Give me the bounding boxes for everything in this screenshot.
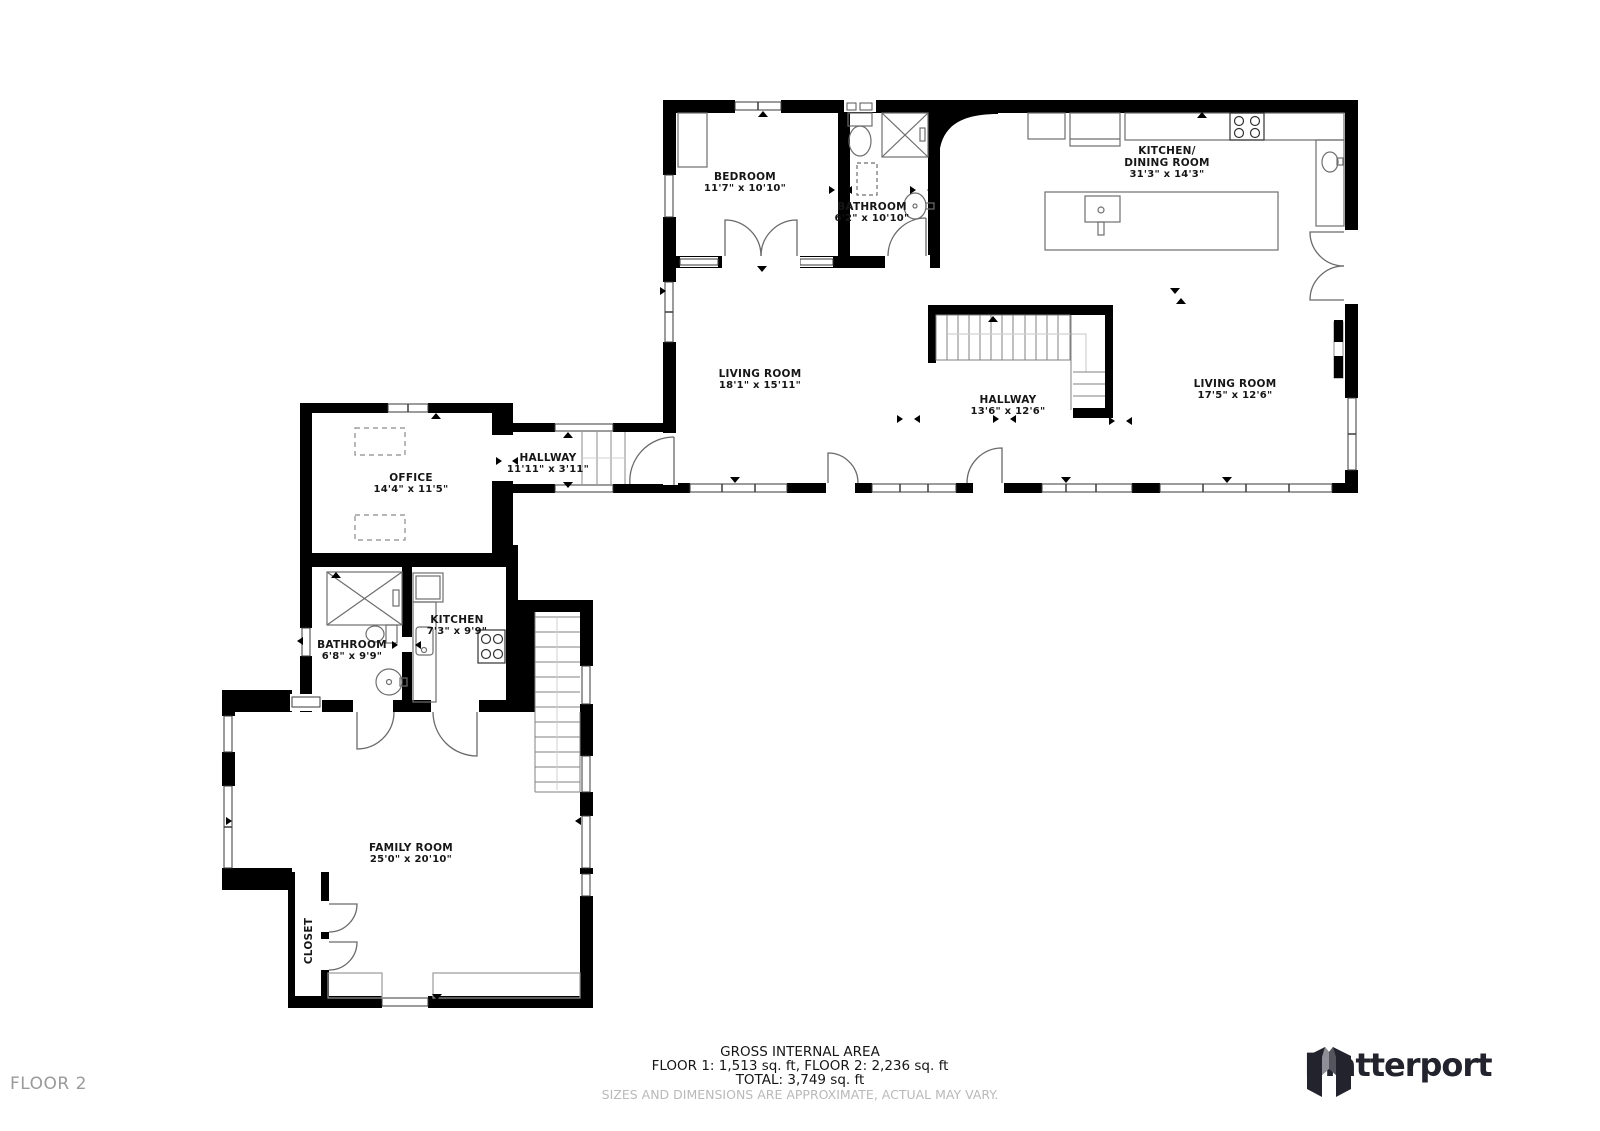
- room-label-office: OFFICE 14'4" x 11'5": [374, 472, 449, 496]
- area-summary-disclaimer: SIZES AND DIMENSIONS ARE APPROXIMATE, AC…: [602, 1088, 999, 1102]
- room-label-bathroom-lower: BATHROOM 6'8" x 9'9": [317, 639, 387, 663]
- background: [0, 0, 1600, 1131]
- matterport-logo-icon: [1304, 1046, 1354, 1100]
- room-label-living-room-right: LIVING ROOM 17'5" x 12'6": [1194, 378, 1277, 402]
- room-label-bathroom-upper: BATHROOM 6'2" x 10'10": [835, 201, 910, 225]
- room-label-kitchen-small: KITCHEN 7'3" x 9'9": [427, 614, 488, 638]
- floor-plan: [0, 0, 1600, 1131]
- floor-label: FLOOR 2: [10, 1074, 87, 1094]
- floorplan-page: BEDROOM 11'7" x 10'10" BATHROOM 6'2" x 1…: [0, 0, 1600, 1131]
- room-label-living-room-left: LIVING ROOM 18'1" x 15'11": [719, 368, 802, 392]
- area-summary-title: GROSS INTERNAL AREA: [602, 1045, 999, 1059]
- room-label-hallway-connector: HALLWAY 11'11" x 3'11": [507, 452, 589, 476]
- room-label-family-room: FAMILY ROOM 25'0" x 20'10": [369, 842, 453, 866]
- room-label-bedroom: BEDROOM 11'7" x 10'10": [704, 171, 786, 195]
- room-label-closet: CLOSET: [303, 918, 315, 964]
- matterport-logo: Matterport: [1304, 1046, 1491, 1084]
- room-label-hallway-main: HALLWAY 13'6" x 12'6": [971, 394, 1046, 418]
- area-summary: GROSS INTERNAL AREA FLOOR 1: 1,513 sq. f…: [602, 1045, 999, 1102]
- area-summary-floors: FLOOR 1: 1,513 sq. ft, FLOOR 2: 2,236 sq…: [602, 1059, 999, 1073]
- room-label-kitchen-dining: KITCHEN/ DINING ROOM 31'3" x 14'3": [1124, 145, 1210, 181]
- area-summary-total: TOTAL: 3,749 sq. ft: [602, 1073, 999, 1087]
